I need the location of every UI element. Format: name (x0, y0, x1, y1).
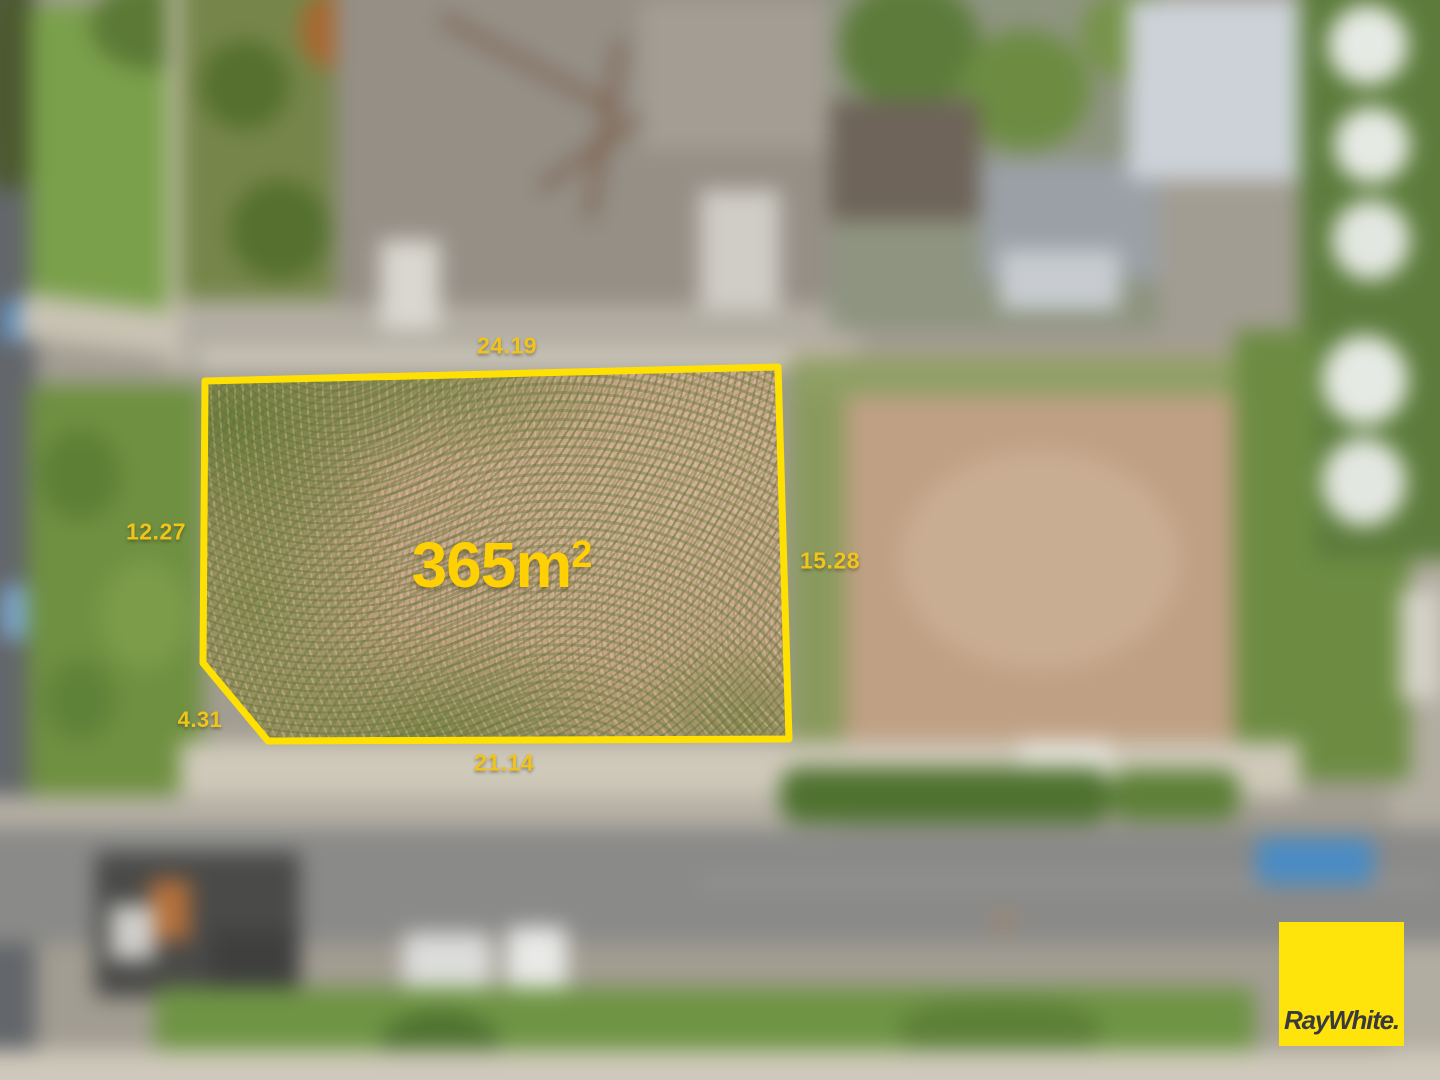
dimension-label-right: 15.28 (800, 548, 860, 575)
dimension-label-top: 24.19 (477, 333, 537, 360)
annotation-overlay: 24.19 12.27 15.28 4.31 21.14 365m2 RayWh… (0, 0, 1440, 1080)
dimension-label-bottom: 21.14 (474, 750, 534, 777)
raywhite-logo-text: RayWhite. (1284, 1007, 1399, 1033)
area-value: 365m (412, 529, 572, 601)
raywhite-logo: RayWhite. (1279, 922, 1404, 1046)
aerial-lot-photo: 24.19 12.27 15.28 4.31 21.14 365m2 RayWh… (0, 0, 1440, 1080)
dimension-label-bottom-left: 4.31 (178, 707, 223, 733)
lot-boundary-outline (0, 0, 1440, 1080)
area-exponent: 2 (571, 534, 592, 576)
area-label: 365m2 (412, 528, 593, 602)
dimension-label-left: 12.27 (126, 519, 186, 546)
